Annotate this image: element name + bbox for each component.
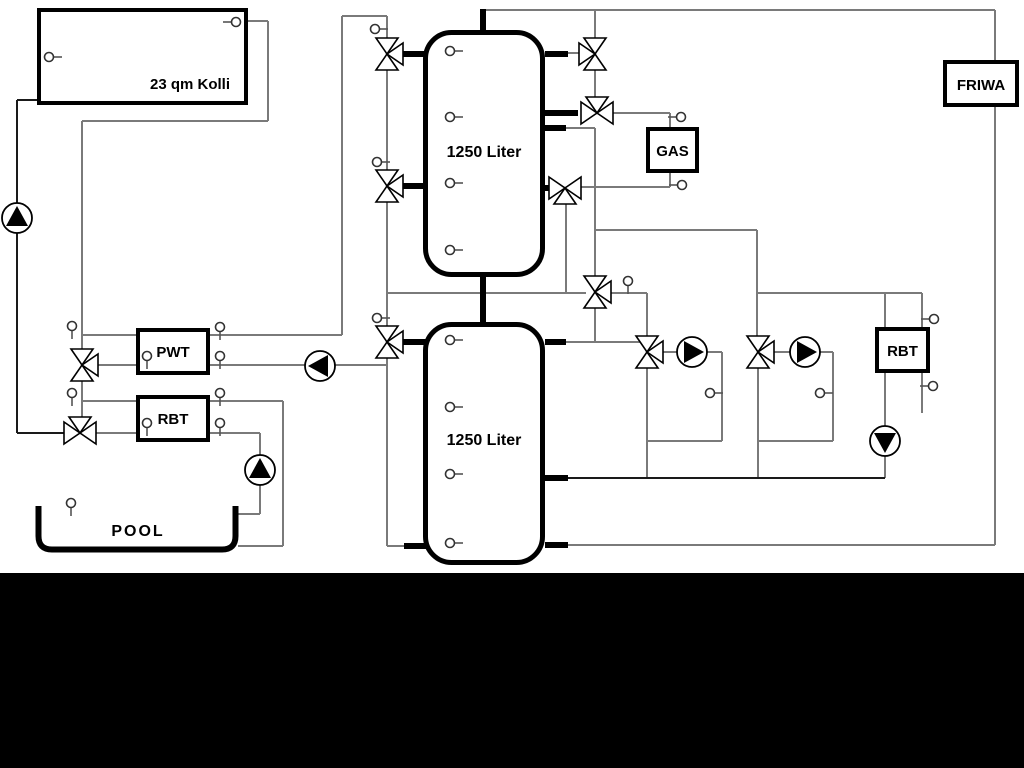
temperature-sensor <box>669 181 687 190</box>
pump <box>305 351 335 381</box>
hydraulic-schematic: 23 qm Kolli 1250 Liter 1250 Liter PWT RB… <box>0 0 1024 768</box>
sensor-bulb <box>371 25 380 34</box>
sensor-bulb <box>446 246 455 255</box>
sensor-bulb <box>446 47 455 56</box>
three-way-valve <box>549 177 581 204</box>
sensor-bulb <box>143 419 152 428</box>
three-way-valve <box>636 336 663 368</box>
sensor-bulb <box>68 389 77 398</box>
sensor-bulb <box>216 419 225 428</box>
sensor-bulb <box>706 389 715 398</box>
sensor-bulb <box>624 277 633 286</box>
three-way-valve <box>584 276 611 308</box>
pump <box>870 426 900 456</box>
rbt-right-label: RBT <box>887 343 918 360</box>
sensor-bulb <box>373 158 382 167</box>
pool-label: POOL <box>111 523 164 540</box>
pump <box>245 455 275 485</box>
sensor-bulb <box>929 382 938 391</box>
sensor-bulb <box>816 389 825 398</box>
sensor-bulb <box>232 18 241 27</box>
pump <box>2 203 32 233</box>
pwt-label: PWT <box>156 344 189 361</box>
sensor-bulb <box>216 352 225 361</box>
collector-label: 23 qm Kolli <box>150 76 230 93</box>
footer-black-band <box>0 573 1024 768</box>
three-way-valve <box>579 38 606 70</box>
temperature-sensor <box>216 389 225 407</box>
three-way-valve <box>581 97 613 124</box>
temperature-sensor <box>816 389 834 398</box>
three-way-valve <box>747 336 774 368</box>
sensor-bulb <box>216 323 225 332</box>
sensor-bulb <box>373 314 382 323</box>
sensor-bulb <box>216 389 225 398</box>
sensor-bulb <box>67 499 76 508</box>
sensor-bulb <box>446 179 455 188</box>
sensor-bulb <box>446 113 455 122</box>
temperature-sensor <box>67 499 76 517</box>
three-way-valve <box>64 417 96 444</box>
pump <box>790 337 820 367</box>
friwa-label: FRIWA <box>957 77 1005 94</box>
sensor-bulb <box>143 352 152 361</box>
temperature-sensor <box>68 389 77 407</box>
sensor-bulb <box>678 181 687 190</box>
temperature-sensor <box>371 25 389 34</box>
rbt-left-label: RBT <box>158 411 189 428</box>
three-way-valve <box>376 326 403 358</box>
sensor-bulb <box>446 403 455 412</box>
temperature-sensor <box>216 352 225 370</box>
temperature-sensor <box>706 389 724 398</box>
temperature-sensor <box>921 315 939 324</box>
three-way-valve <box>376 170 403 202</box>
sensor-bulb <box>446 470 455 479</box>
gas-label: GAS <box>656 143 689 160</box>
three-way-valve <box>71 349 98 381</box>
sensor-bulb <box>930 315 939 324</box>
sensor-bulb <box>68 322 77 331</box>
schematic-canvas: 23 qm Kolli 1250 Liter 1250 Liter PWT RB… <box>0 0 1024 768</box>
sensor-bulb <box>446 336 455 345</box>
sensor-bulb <box>677 113 686 122</box>
temperature-sensor <box>68 322 77 340</box>
buffer-tank-bottom-label: 1250 Liter <box>447 432 522 449</box>
temperature-sensor <box>216 323 225 341</box>
pump <box>677 337 707 367</box>
sensor-bulb <box>446 539 455 548</box>
buffer-tank-top-label: 1250 Liter <box>447 144 522 161</box>
sensor-bulb <box>45 53 54 62</box>
three-way-valve <box>376 38 403 70</box>
temperature-sensor <box>624 277 633 295</box>
